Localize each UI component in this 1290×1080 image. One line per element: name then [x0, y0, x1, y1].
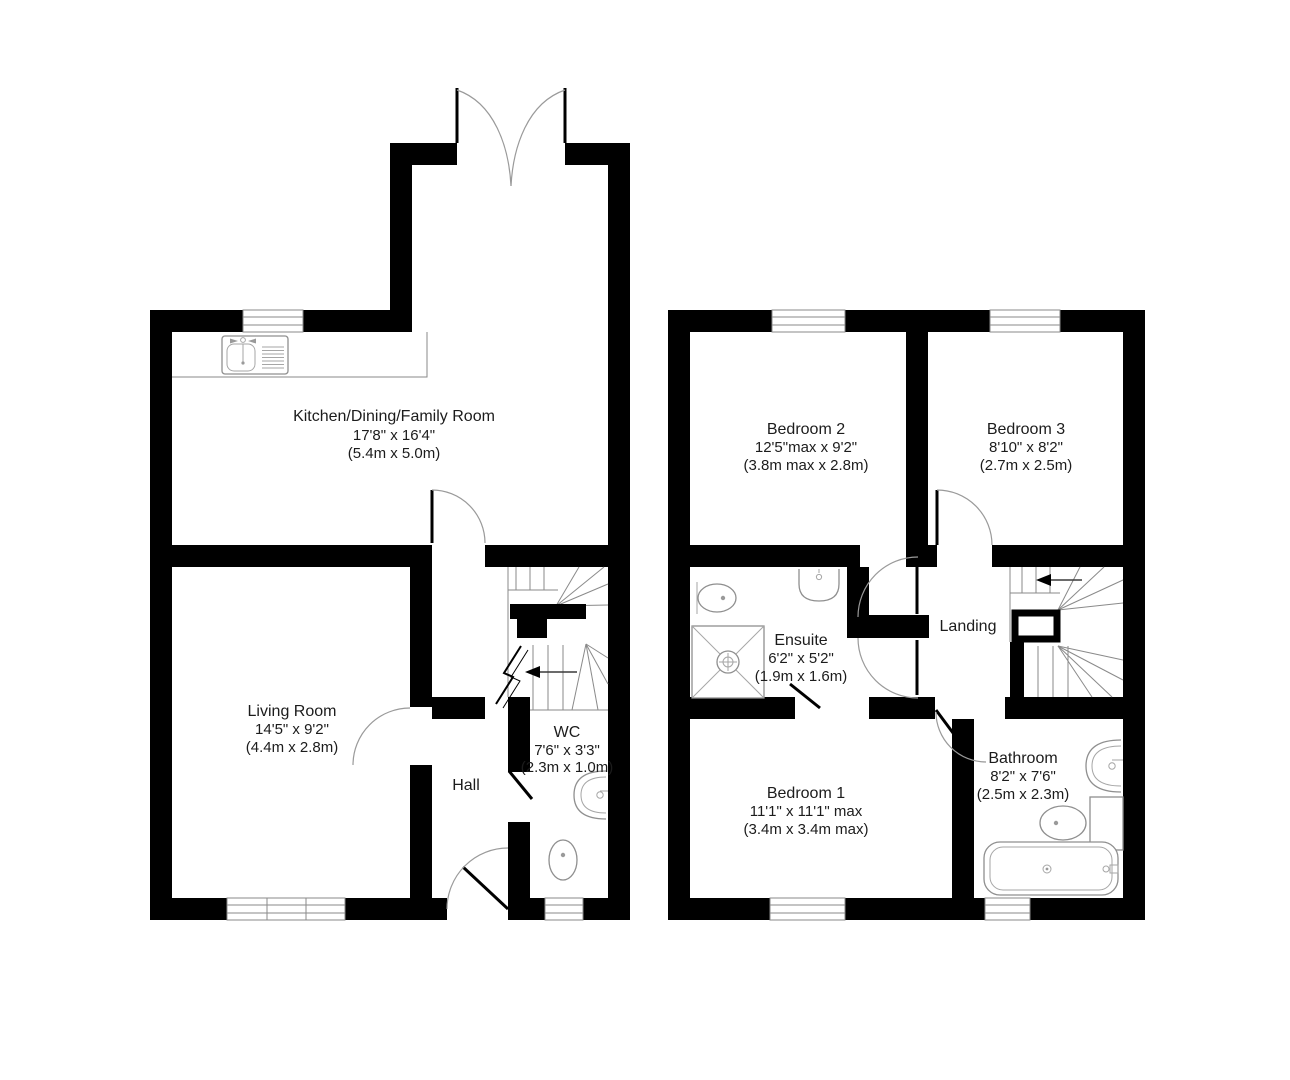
- ensuite-shower: [692, 626, 764, 698]
- bedroom2-window: [772, 310, 845, 332]
- front-door: [447, 848, 508, 909]
- bedroom3-metric: (2.7m x 2.5m): [980, 457, 1073, 474]
- living-room-door: [353, 708, 410, 765]
- wc-name: WC: [554, 724, 581, 741]
- room-label-bedroom2: Bedroom 2 12'5"max x 9'2" (3.8m max x 2.…: [743, 421, 868, 474]
- wc-imperial: 7'6" x 3'3": [534, 742, 600, 759]
- first-stairs: [1010, 567, 1123, 697]
- bathroom-name: Bathroom: [988, 750, 1057, 767]
- bedroom3-imperial: 8'10" x 8'2": [989, 439, 1063, 456]
- bathroom-window: [985, 898, 1030, 920]
- bedroom1-name: Bedroom 1: [767, 785, 845, 802]
- living-imperial: 14'5" x 9'2": [255, 721, 329, 738]
- bedroom3-name: Bedroom 3: [987, 421, 1065, 438]
- living-metric: (4.4m x 2.8m): [246, 739, 339, 756]
- bathroom-basin: [1086, 740, 1123, 792]
- bedroom3-door: [937, 490, 992, 545]
- kitchen-imperial: 17'8" x 16'4": [353, 427, 435, 444]
- ensuite-basin: [799, 569, 839, 601]
- floorplan-svg: Kitchen/Dining/Family Room 17'8" x 16'4"…: [0, 0, 1290, 1080]
- bedroom1-imperial: 11'1" x 11'1" max: [750, 803, 863, 820]
- bedroom2-metric: (3.8m max x 2.8m): [743, 457, 868, 474]
- bedroom2-imperial: 12'5"max x 9'2": [755, 439, 857, 456]
- kitchen-metric: (5.4m x 5.0m): [348, 445, 441, 462]
- wc-metric: (2.3m x 1.0m): [521, 759, 614, 776]
- room-label-landing: Landing: [940, 618, 997, 635]
- first-floor-plan: Bedroom 2 12'5"max x 9'2" (3.8m max x 2.…: [668, 310, 1145, 920]
- room-label-bedroom1: Bedroom 1 11'1" x 11'1" max (3.4m x 3.4m…: [743, 785, 868, 838]
- ground-floor-plan: Kitchen/Dining/Family Room 17'8" x 16'4"…: [150, 88, 630, 920]
- room-label-wc: WC 7'6" x 3'3" (2.3m x 1.0m): [521, 724, 614, 776]
- wc-window: [545, 898, 583, 920]
- wc-toilet: [549, 840, 577, 880]
- kitchen-sink: [222, 336, 288, 374]
- ensuite-metric: (1.9m x 1.6m): [755, 668, 848, 685]
- room-label-hall: Hall: [452, 777, 480, 794]
- living-name: Living Room: [248, 703, 337, 720]
- kitchen-window: [243, 310, 303, 332]
- ensuite-name: Ensuite: [774, 632, 827, 649]
- bedroom3-window: [990, 310, 1060, 332]
- living-room-window: [227, 898, 345, 920]
- bedroom1-metric: (3.4m x 3.4m max): [743, 821, 868, 838]
- french-doors: [457, 88, 565, 186]
- floorplan-page: Kitchen/Dining/Family Room 17'8" x 16'4"…: [0, 0, 1290, 1080]
- bathroom-imperial: 8'2" x 7'6": [990, 768, 1056, 785]
- bathtub: [984, 842, 1118, 895]
- ensuite-imperial: 6'2" x 5'2": [768, 650, 834, 667]
- ground-walls: [150, 143, 630, 920]
- ground-stairs: [496, 567, 608, 710]
- kitchen-name: Kitchen/Dining/Family Room: [293, 408, 495, 425]
- kitchen-counter: [172, 332, 427, 377]
- ensuite-toilet: [697, 582, 736, 614]
- room-label-ensuite: Ensuite 6'2" x 5'2" (1.9m x 1.6m): [755, 632, 848, 685]
- bedroom2-name: Bedroom 2: [767, 421, 845, 438]
- room-label-living: Living Room 14'5" x 9'2" (4.4m x 2.8m): [246, 703, 339, 756]
- hall-name: Hall: [452, 777, 480, 794]
- wc-basin: [574, 771, 608, 819]
- room-label-bedroom3: Bedroom 3 8'10" x 8'2" (2.7m x 2.5m): [980, 421, 1073, 474]
- room-label-kitchen: Kitchen/Dining/Family Room 17'8" x 16'4"…: [293, 408, 495, 462]
- landing-name: Landing: [940, 618, 997, 635]
- kitchen-door: [432, 490, 485, 543]
- bathroom-metric: (2.5m x 2.3m): [977, 786, 1070, 803]
- room-label-bathroom: Bathroom 8'2" x 7'6" (2.5m x 2.3m): [977, 750, 1070, 803]
- bedroom1-door: [858, 638, 918, 698]
- bedroom1-window: [770, 898, 845, 920]
